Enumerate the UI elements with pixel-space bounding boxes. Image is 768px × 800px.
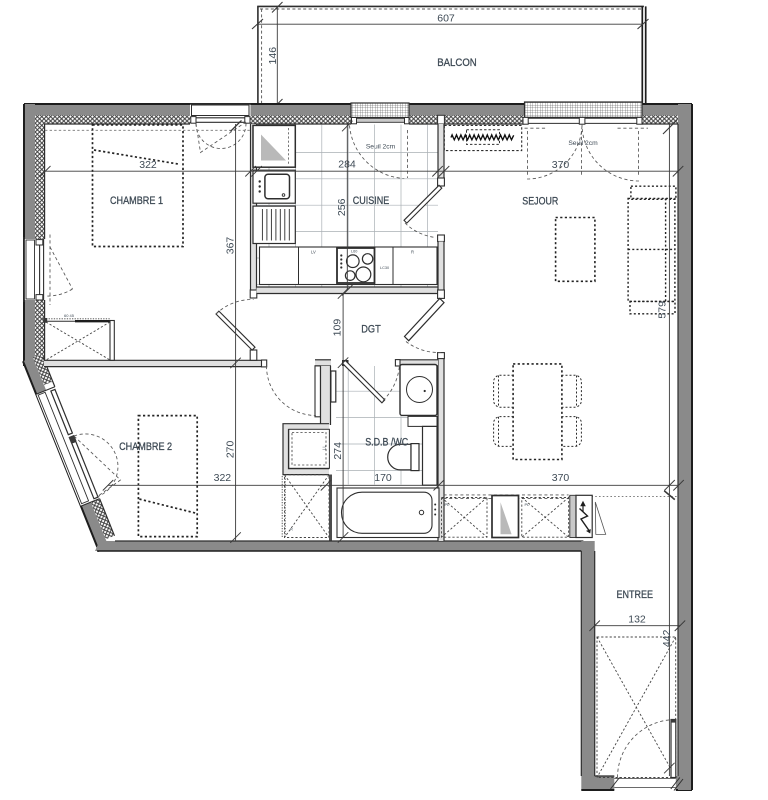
svg-text:PL: PL [445, 502, 451, 507]
svg-text:LL: LL [322, 445, 327, 450]
svg-text:60 45: 60 45 [64, 313, 75, 318]
svg-text:367: 367 [225, 237, 237, 255]
svg-text:Seuil 2cm: Seuil 2cm [366, 143, 396, 150]
svg-text:109: 109 [332, 319, 344, 337]
svg-text:CUISINE: CUISINE [353, 195, 390, 207]
svg-text:LV: LV [311, 250, 316, 255]
svg-text:SEJOUR: SEJOUR [522, 195, 558, 207]
svg-text:L60: L60 [351, 249, 357, 253]
svg-text:270: 270 [225, 440, 237, 458]
svg-text:579: 579 [657, 301, 669, 319]
svg-text:370: 370 [552, 159, 570, 171]
svg-text:R: R [290, 527, 293, 532]
svg-text:R: R [411, 250, 414, 255]
svg-text:PL: PL [525, 502, 531, 507]
svg-text:CHAMBRE 2: CHAMBRE 2 [119, 441, 172, 453]
svg-text:170: 170 [374, 472, 392, 484]
svg-text:256: 256 [336, 198, 348, 216]
svg-text:CHAMBRE 1: CHAMBRE 1 [110, 195, 163, 207]
svg-text:322: 322 [139, 159, 157, 171]
svg-text:322: 322 [214, 472, 232, 484]
svg-text:LC30: LC30 [380, 266, 389, 270]
svg-text:607: 607 [437, 13, 455, 25]
svg-text:S.D.B /WC: S.D.B /WC [365, 437, 408, 449]
svg-text:442: 442 [661, 629, 673, 647]
svg-text:370: 370 [552, 472, 570, 484]
svg-text:ENTREE: ENTREE [617, 589, 654, 601]
svg-text:274: 274 [332, 442, 344, 460]
svg-text:132: 132 [628, 613, 646, 625]
svg-text:146: 146 [267, 47, 279, 65]
svg-text:DGT: DGT [361, 324, 381, 336]
svg-text:BALCON: BALCON [437, 57, 477, 69]
svg-text:Seuil 2cm: Seuil 2cm [568, 140, 598, 147]
